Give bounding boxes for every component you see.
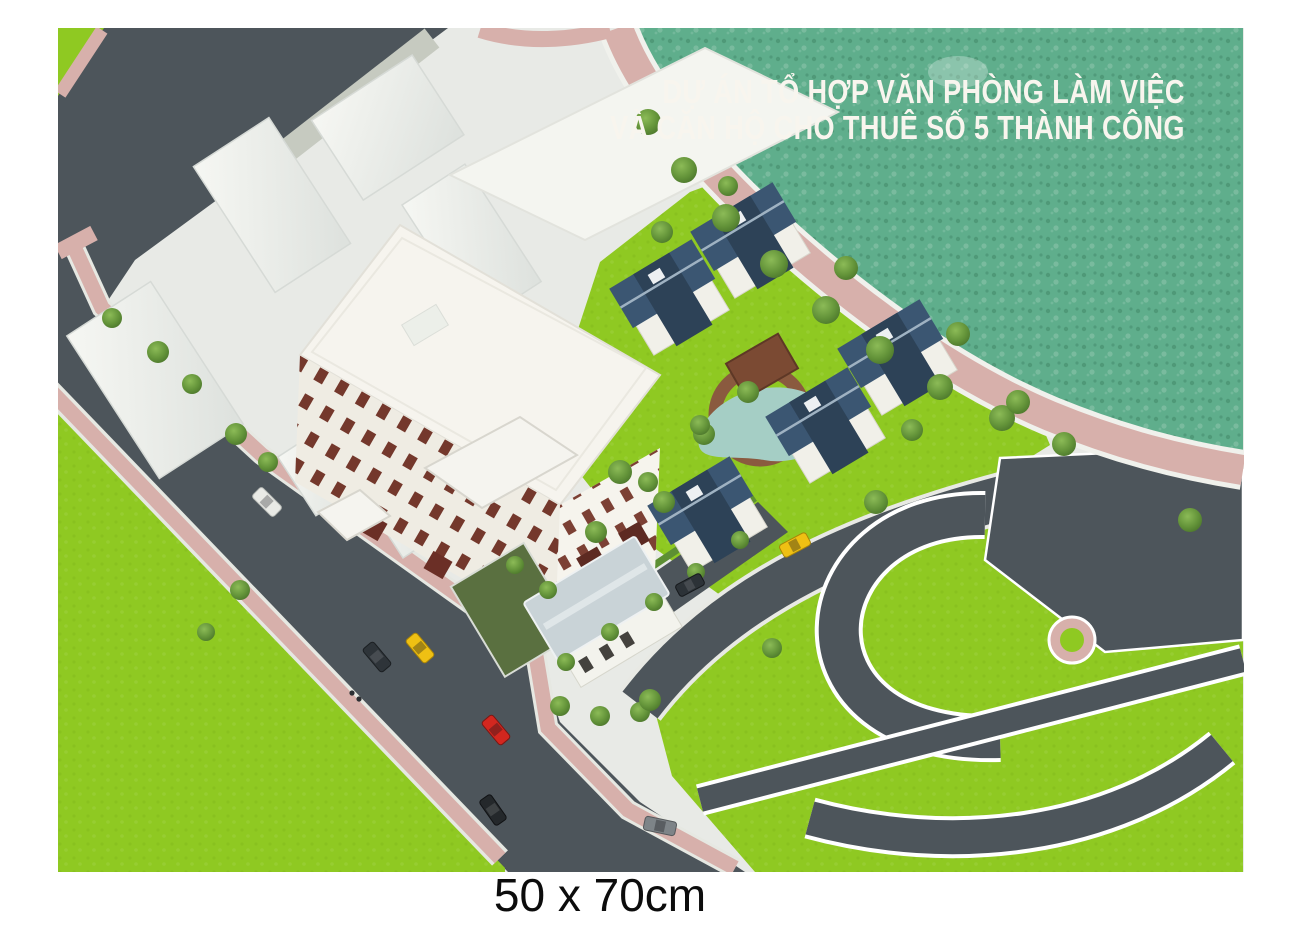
- palm-tree-icon: [506, 556, 524, 574]
- tree-icon: [712, 204, 740, 232]
- tree-icon: [102, 308, 122, 328]
- tree-icon: [1052, 432, 1076, 456]
- palm-tree-icon: [645, 593, 663, 611]
- tree-icon: [550, 696, 570, 716]
- palm-tree-icon: [539, 581, 557, 599]
- tree-icon: [927, 374, 953, 400]
- promenade-spur: [480, 30, 610, 39]
- tree-icon: [258, 452, 278, 472]
- tree-icon: [762, 638, 782, 658]
- pedestrian: [349, 690, 354, 695]
- tree-icon: [225, 423, 247, 445]
- park-fountain-center: [1060, 628, 1084, 652]
- project-title-line2: VÀ CĂN HỘ CHO THUÊ SỐ 5 THÀNH CÔNG: [610, 110, 1185, 146]
- tree-icon: [812, 296, 840, 324]
- palm-tree-icon: [557, 653, 575, 671]
- tree-icon: [230, 580, 250, 600]
- tree-icon: [197, 623, 215, 641]
- tree-icon: [1006, 390, 1030, 414]
- pedestrian: [356, 696, 361, 701]
- project-title-line1: DỰ ÁN TỔ HỢP VĂN PHÒNG LÀM VIỆC: [610, 74, 1185, 110]
- palm-tree-icon: [601, 623, 619, 641]
- tree-icon: [690, 415, 710, 435]
- tree-icon: [718, 176, 738, 196]
- tree-icon: [147, 341, 169, 363]
- tree-icon: [866, 336, 894, 364]
- tree-icon: [1178, 508, 1202, 532]
- palm-tree-icon: [731, 531, 749, 549]
- tree-icon: [834, 256, 858, 280]
- tree-icon: [901, 419, 923, 441]
- tree-icon: [651, 221, 673, 243]
- size-caption: 50 x 70cm: [470, 868, 730, 922]
- palm-tree-icon: [653, 491, 675, 513]
- tree-icon: [639, 689, 661, 711]
- tree-icon: [590, 706, 610, 726]
- tree-icon: [864, 490, 888, 514]
- tree-icon: [638, 472, 658, 492]
- tree-icon: [182, 374, 202, 394]
- palm-tree-icon: [585, 521, 607, 543]
- poster-canvas: DỰ ÁN TỔ HỢP VĂN PHÒNG LÀM VIỆC VÀ CĂN H…: [0, 0, 1299, 945]
- tree-icon: [946, 322, 970, 346]
- palm-tree-icon: [608, 460, 632, 484]
- palm-tree-icon: [737, 381, 759, 403]
- tree-icon: [760, 250, 788, 278]
- project-title: DỰ ÁN TỔ HỢP VĂN PHÒNG LÀM VIỆC VÀ CĂN H…: [610, 74, 1185, 146]
- tree-icon: [671, 157, 697, 183]
